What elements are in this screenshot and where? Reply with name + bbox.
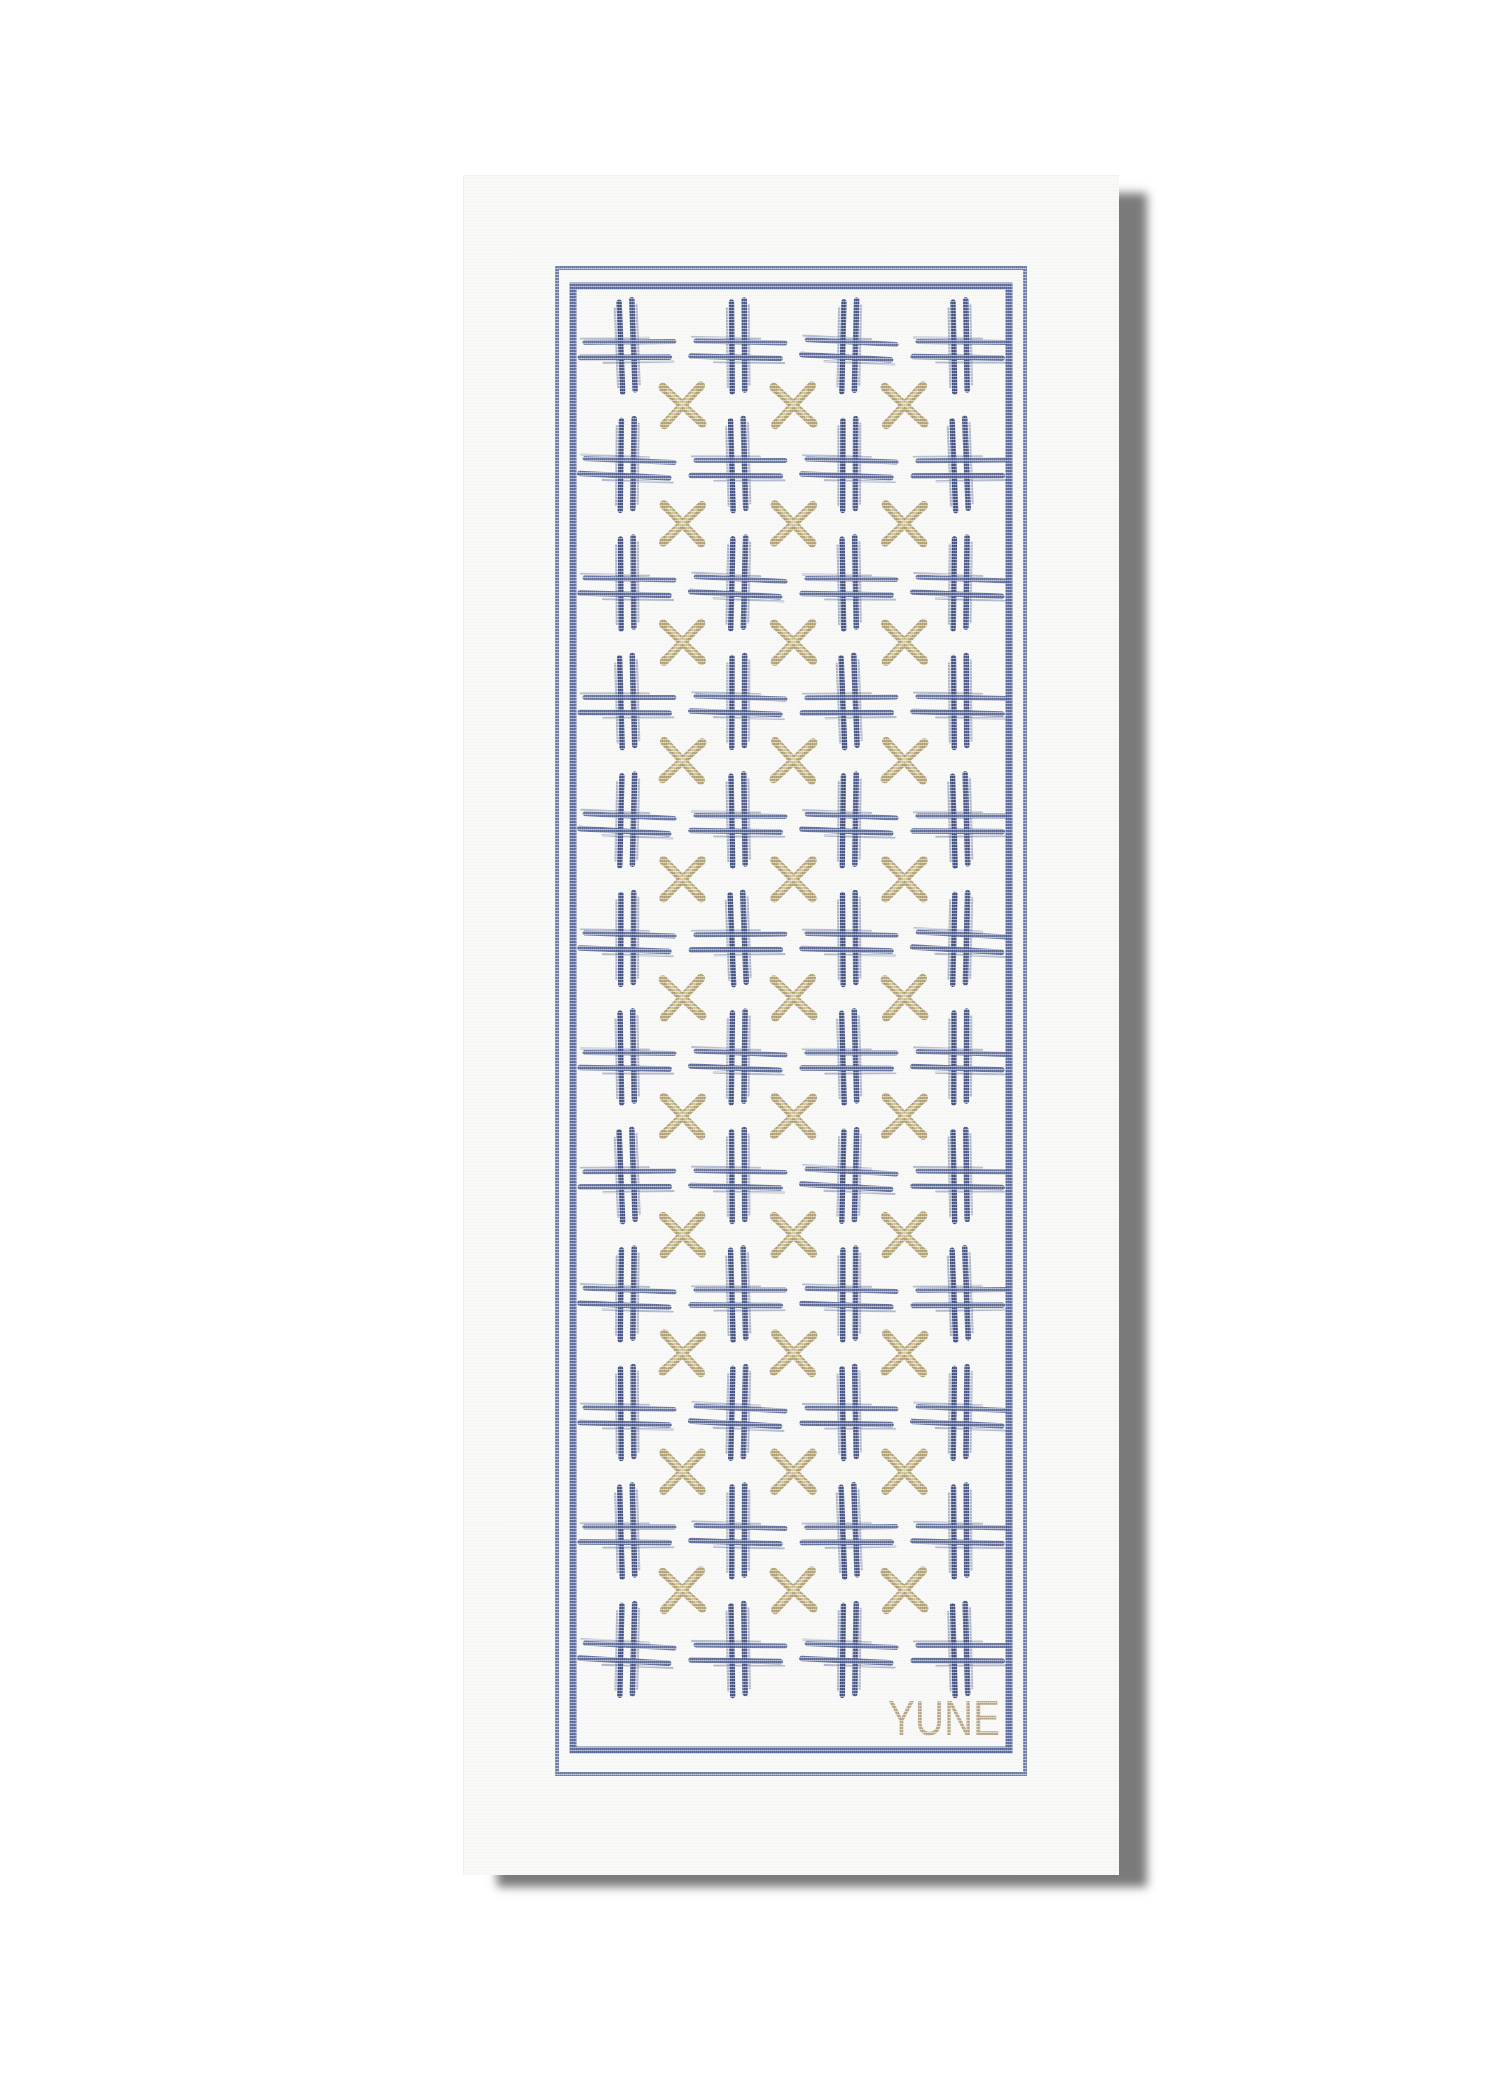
brush-stroke bbox=[727, 1493, 729, 1572]
brush-stroke bbox=[580, 1067, 669, 1070]
brush-stroke bbox=[918, 1407, 1007, 1411]
hash-symbol bbox=[579, 773, 676, 868]
brush-stroke bbox=[691, 356, 780, 359]
brush-stroke bbox=[965, 1367, 967, 1457]
hash-symbol bbox=[690, 1247, 786, 1341]
brush-stroke bbox=[616, 545, 617, 624]
brush-stroke bbox=[691, 830, 780, 833]
brush-stroke bbox=[948, 545, 950, 624]
brush-stroke bbox=[726, 1019, 728, 1098]
brush-stroke bbox=[619, 302, 623, 392]
brush-stroke bbox=[731, 1606, 733, 1696]
brush-stroke bbox=[731, 657, 733, 747]
brush-stroke bbox=[802, 1540, 891, 1545]
brush-stroke bbox=[585, 696, 674, 700]
brush-stroke bbox=[615, 1493, 617, 1572]
hash-symbol bbox=[690, 536, 787, 631]
hash-symbol bbox=[802, 1248, 897, 1341]
cross-symbol bbox=[661, 623, 704, 662]
brush-stroke bbox=[691, 1659, 780, 1662]
brush-stroke bbox=[691, 1066, 780, 1070]
brush-stroke bbox=[913, 947, 1002, 952]
brush-stroke bbox=[807, 1407, 896, 1410]
brush-stroke bbox=[936, 1547, 1006, 1548]
brush-stroke bbox=[842, 776, 845, 866]
brush-stroke bbox=[748, 542, 751, 622]
brush-stroke bbox=[803, 930, 871, 932]
brush-stroke bbox=[638, 1372, 639, 1452]
brush-stroke bbox=[744, 1485, 746, 1575]
brush-stroke bbox=[620, 420, 623, 510]
brush-stroke bbox=[748, 1016, 750, 1096]
brush-stroke bbox=[633, 893, 635, 983]
hash-symbol bbox=[690, 1010, 786, 1104]
brush-stroke bbox=[971, 661, 972, 741]
brush-stroke bbox=[936, 718, 1006, 719]
brush-stroke bbox=[918, 1288, 1007, 1293]
brush-stroke bbox=[807, 1051, 896, 1055]
cross-symbol bbox=[884, 860, 926, 898]
brush-stroke bbox=[727, 782, 729, 861]
brush-stroke bbox=[743, 1367, 746, 1457]
brush-stroke bbox=[837, 782, 839, 861]
brush-stroke bbox=[802, 1184, 891, 1189]
brush-stroke bbox=[918, 458, 1007, 463]
brush-stroke bbox=[692, 1167, 760, 1169]
brush-stroke bbox=[837, 1611, 839, 1690]
brush-stroke bbox=[970, 542, 972, 622]
brush-stroke bbox=[730, 1368, 734, 1458]
brush-stroke bbox=[855, 537, 857, 627]
hash-symbol bbox=[580, 1011, 675, 1104]
brush-stroke bbox=[748, 661, 749, 741]
hash-symbol bbox=[691, 1130, 785, 1222]
brush-stroke bbox=[603, 1429, 673, 1430]
brush-stroke bbox=[637, 1609, 640, 1689]
brush-stroke bbox=[838, 901, 839, 980]
hash-symbol bbox=[801, 654, 898, 749]
brush-stroke bbox=[965, 537, 967, 627]
cross-symbol bbox=[662, 860, 704, 898]
brush-stroke bbox=[948, 1612, 950, 1691]
brush-stroke bbox=[952, 894, 956, 984]
brush-stroke bbox=[913, 1422, 1002, 1426]
brush-stroke bbox=[970, 1016, 971, 1096]
brush-stroke bbox=[585, 814, 674, 819]
brush-stroke bbox=[802, 355, 891, 360]
brush-stroke bbox=[748, 1372, 751, 1452]
product-photo-backdrop: YUNE bbox=[0, 0, 1500, 2100]
brush-stroke bbox=[620, 1250, 623, 1340]
brush-stroke bbox=[803, 1403, 871, 1405]
hash-symbol bbox=[913, 656, 1007, 748]
hash-symbol bbox=[691, 1485, 786, 1578]
brush-stroke bbox=[619, 776, 623, 866]
brush-stroke bbox=[744, 1603, 746, 1693]
brush-stroke bbox=[838, 426, 840, 505]
hash-symbol bbox=[801, 1603, 897, 1697]
brush-stroke bbox=[918, 1644, 1007, 1648]
brush-stroke bbox=[953, 302, 955, 392]
brush-stroke bbox=[743, 1011, 745, 1101]
brush-stroke bbox=[859, 1135, 862, 1215]
brush-stroke bbox=[802, 1422, 891, 1425]
hash-symbol bbox=[579, 1247, 675, 1341]
brush-stroke bbox=[603, 599, 673, 600]
brush-stroke bbox=[918, 814, 1007, 818]
brush-stroke bbox=[731, 776, 733, 866]
brush-stroke bbox=[620, 1013, 622, 1103]
brush-stroke bbox=[714, 1192, 784, 1193]
brush-stroke bbox=[918, 1052, 1007, 1055]
brush-stroke bbox=[603, 1546, 673, 1548]
brush-stroke bbox=[859, 305, 862, 385]
brush-stroke bbox=[838, 1375, 840, 1454]
cross-symbol bbox=[883, 741, 926, 781]
brush-stroke bbox=[691, 711, 780, 714]
brush-stroke bbox=[692, 455, 760, 458]
hash-symbol bbox=[912, 417, 1009, 512]
brush-stroke bbox=[860, 898, 861, 978]
brush-stroke bbox=[970, 1134, 971, 1214]
brush-stroke bbox=[632, 774, 635, 864]
hash-symbol bbox=[579, 655, 675, 749]
brush-stroke bbox=[913, 592, 1002, 596]
brush-stroke bbox=[696, 696, 785, 699]
brush-stroke bbox=[748, 1608, 749, 1688]
cross-symbol bbox=[661, 386, 704, 426]
brush-stroke bbox=[580, 1540, 669, 1544]
brush-stroke bbox=[714, 1665, 784, 1667]
brush-stroke bbox=[842, 539, 844, 629]
brush-stroke bbox=[841, 1131, 845, 1221]
brush-stroke bbox=[632, 1248, 634, 1338]
brush-stroke bbox=[802, 1304, 891, 1307]
brush-stroke bbox=[807, 340, 896, 345]
brush-stroke bbox=[825, 1310, 895, 1312]
brush-stroke bbox=[859, 1371, 860, 1451]
brush-stroke bbox=[731, 1487, 733, 1577]
cross-symbol bbox=[884, 1453, 926, 1491]
brush-stroke bbox=[714, 717, 784, 719]
brush-stroke bbox=[730, 539, 734, 629]
brush-stroke bbox=[692, 1285, 760, 1288]
cross-symbol bbox=[661, 1571, 704, 1611]
brush-stroke bbox=[966, 656, 967, 746]
brush-stroke bbox=[580, 355, 669, 360]
brush-stroke bbox=[971, 1490, 972, 1570]
brush-stroke bbox=[585, 1052, 674, 1055]
brush-stroke bbox=[714, 480, 784, 482]
brush-stroke bbox=[632, 419, 634, 509]
cross-symbol bbox=[883, 504, 926, 543]
brush-stroke bbox=[936, 1665, 1006, 1667]
brush-stroke bbox=[714, 836, 784, 838]
brush-stroke bbox=[936, 362, 1006, 364]
brush-stroke bbox=[913, 1303, 1002, 1308]
brush-stroke bbox=[585, 1408, 674, 1410]
cross-symbol bbox=[883, 1097, 926, 1136]
hash-symbol bbox=[802, 893, 896, 985]
brush-stroke bbox=[692, 811, 760, 813]
brush-stroke bbox=[691, 947, 780, 952]
brush-stroke bbox=[802, 829, 891, 833]
brush-stroke bbox=[585, 1288, 674, 1292]
hash-symbol bbox=[580, 1367, 674, 1459]
brush-stroke bbox=[965, 774, 967, 864]
brush-stroke bbox=[965, 1603, 967, 1693]
brush-stroke bbox=[855, 1366, 857, 1456]
hash-symbol bbox=[913, 1011, 1008, 1104]
brush-stroke bbox=[633, 537, 634, 627]
brush-stroke bbox=[949, 664, 950, 743]
cross-symbol bbox=[661, 978, 704, 1018]
brush-stroke bbox=[825, 480, 895, 482]
brush-stroke bbox=[802, 474, 891, 477]
cross-symbol bbox=[772, 1571, 815, 1611]
brush-stroke bbox=[807, 1289, 896, 1292]
brush-stroke bbox=[696, 815, 785, 818]
brush-stroke bbox=[918, 341, 1007, 344]
brush-stroke bbox=[855, 419, 857, 509]
brush-stroke bbox=[732, 1132, 733, 1222]
brush-stroke bbox=[731, 1013, 734, 1103]
brush-stroke bbox=[802, 949, 891, 952]
hash-symbol bbox=[912, 1603, 1008, 1697]
brush-stroke bbox=[953, 1368, 956, 1458]
brush-stroke bbox=[807, 1644, 896, 1648]
brush-stroke bbox=[854, 1485, 857, 1575]
cross-symbol bbox=[883, 978, 926, 1018]
brush-stroke bbox=[854, 1130, 857, 1220]
cross-symbol bbox=[773, 1453, 815, 1491]
brush-stroke bbox=[748, 1253, 750, 1333]
brush-stroke bbox=[918, 1170, 1007, 1173]
brush-stroke bbox=[807, 578, 896, 581]
brush-stroke bbox=[953, 1132, 955, 1222]
brush-stroke bbox=[632, 1604, 635, 1694]
cross-symbol bbox=[661, 1215, 704, 1254]
brush-stroke bbox=[691, 1541, 780, 1544]
brush-stroke bbox=[970, 898, 973, 978]
brush-stroke bbox=[615, 1256, 617, 1335]
yoga-mat: YUNE bbox=[463, 175, 1119, 1875]
brush-stroke bbox=[637, 1490, 639, 1570]
brush-stroke bbox=[952, 421, 956, 511]
brush-stroke bbox=[620, 1487, 623, 1577]
brush-stroke bbox=[918, 697, 1007, 699]
cross-symbol bbox=[661, 504, 704, 543]
brush-stroke bbox=[749, 305, 750, 385]
brush-stroke bbox=[914, 811, 982, 814]
brush-stroke bbox=[842, 1605, 845, 1695]
brush-stroke bbox=[580, 1303, 669, 1307]
brush-stroke bbox=[691, 1186, 780, 1189]
cross-symbol bbox=[772, 623, 815, 662]
brush-stroke bbox=[855, 1248, 857, 1338]
brush-stroke bbox=[854, 1604, 856, 1694]
brush-stroke bbox=[825, 1072, 895, 1074]
brush-stroke bbox=[637, 1016, 638, 1096]
brush-stroke bbox=[603, 480, 673, 482]
hash-symbol bbox=[691, 1603, 786, 1696]
brush-stroke bbox=[936, 1191, 1006, 1193]
brush-stroke bbox=[859, 779, 861, 859]
hash-symbol bbox=[579, 299, 676, 394]
brush-stroke bbox=[692, 1640, 760, 1642]
hash-symbol bbox=[801, 1128, 898, 1223]
brush-stroke bbox=[744, 774, 746, 864]
brush-stroke bbox=[949, 1138, 951, 1217]
cross-symbol bbox=[661, 1334, 704, 1374]
brush-stroke bbox=[803, 574, 871, 576]
brush-stroke bbox=[837, 1019, 839, 1098]
brush-stroke bbox=[637, 660, 639, 740]
hash-symbol bbox=[802, 1366, 897, 1459]
hash-symbol bbox=[912, 1247, 1009, 1342]
brush-stroke bbox=[637, 1253, 639, 1333]
brush-stroke bbox=[913, 712, 1002, 715]
hash-symbol bbox=[690, 1365, 787, 1460]
brush-stroke bbox=[970, 779, 972, 859]
brush-stroke bbox=[743, 892, 746, 982]
brush-stroke bbox=[743, 537, 746, 627]
cross-symbol bbox=[772, 386, 815, 426]
brush-stroke bbox=[966, 1011, 968, 1101]
brush-stroke bbox=[727, 308, 728, 387]
brush-stroke bbox=[807, 814, 896, 818]
brush-stroke bbox=[913, 1541, 1002, 1544]
brush-stroke bbox=[914, 1640, 982, 1643]
brush-stroke bbox=[748, 423, 750, 503]
brush-stroke bbox=[966, 300, 968, 390]
brush-stroke bbox=[838, 545, 840, 624]
brush-stroke bbox=[859, 542, 860, 622]
brush-stroke bbox=[696, 1171, 785, 1173]
brush-stroke bbox=[696, 932, 785, 937]
brush-stroke bbox=[954, 1487, 955, 1577]
brush-stroke bbox=[580, 1658, 669, 1663]
brush-stroke bbox=[802, 710, 891, 715]
brush-stroke bbox=[859, 1253, 860, 1333]
brush-stroke bbox=[913, 1067, 1002, 1070]
hash-symbol bbox=[913, 1485, 1007, 1577]
brush-stroke bbox=[936, 1428, 1006, 1430]
brush-stroke bbox=[731, 1250, 734, 1340]
brush-stroke bbox=[807, 1169, 896, 1174]
brush-stroke bbox=[696, 1406, 785, 1411]
brush-stroke bbox=[913, 1185, 1002, 1188]
brush-stroke bbox=[744, 656, 746, 746]
brush-stroke bbox=[638, 542, 639, 622]
hash-symbol bbox=[801, 299, 898, 394]
hash-symbol bbox=[802, 418, 897, 511]
brush-stroke bbox=[807, 1525, 896, 1530]
hash-symbol bbox=[913, 1129, 1008, 1222]
brush-stroke bbox=[952, 1250, 956, 1340]
brush-stroke bbox=[581, 1048, 649, 1050]
brush-stroke bbox=[803, 1048, 871, 1051]
brush-stroke bbox=[854, 1011, 856, 1101]
brush-stroke bbox=[603, 1309, 673, 1311]
brush-stroke bbox=[726, 1256, 728, 1335]
brush-stroke bbox=[918, 1526, 1007, 1528]
brush-stroke bbox=[953, 539, 956, 629]
brush-stroke bbox=[842, 1250, 844, 1340]
cross-symbol bbox=[772, 978, 815, 1018]
hash-symbol bbox=[912, 1366, 1008, 1460]
hash-symbol bbox=[801, 1484, 898, 1579]
brush-stroke bbox=[744, 300, 745, 390]
brush-stroke bbox=[825, 955, 895, 956]
brush-stroke bbox=[825, 1428, 895, 1430]
brush-stroke bbox=[841, 658, 845, 748]
brush-stroke bbox=[580, 593, 669, 596]
brush-stroke bbox=[913, 473, 1002, 478]
brush-stroke bbox=[691, 1303, 780, 1307]
brush-stroke bbox=[731, 421, 734, 511]
brush-stroke bbox=[965, 418, 968, 508]
brush-stroke bbox=[621, 1369, 622, 1459]
brush-stroke bbox=[859, 424, 860, 504]
brush-stroke bbox=[581, 1404, 649, 1406]
hash-symbol bbox=[801, 773, 897, 867]
hash-symbol bbox=[912, 891, 1009, 986]
brush-stroke bbox=[585, 933, 674, 936]
brush-stroke bbox=[616, 1019, 618, 1098]
hash-symbol bbox=[802, 537, 897, 630]
cross-symbol bbox=[772, 504, 815, 543]
brush-stroke bbox=[918, 932, 1007, 937]
hash-symbol bbox=[912, 536, 1008, 630]
brush-stroke bbox=[621, 539, 622, 629]
brush-stroke bbox=[913, 829, 1002, 833]
brush-stroke bbox=[696, 459, 785, 463]
brush-stroke bbox=[913, 1659, 1002, 1663]
brush-stroke bbox=[748, 779, 749, 859]
brush-stroke bbox=[580, 948, 669, 951]
hash-symbol bbox=[580, 892, 675, 985]
brush-stroke bbox=[953, 1013, 955, 1103]
brush-stroke bbox=[615, 426, 617, 505]
brush-stroke bbox=[714, 362, 784, 363]
brush-stroke bbox=[615, 664, 617, 743]
hash-symbol bbox=[691, 300, 785, 392]
hash-symbol bbox=[690, 418, 786, 512]
cross-symbol bbox=[883, 1571, 926, 1611]
brush-stroke bbox=[748, 1490, 749, 1570]
brush-stroke bbox=[732, 302, 733, 392]
brush-stroke bbox=[949, 1019, 951, 1098]
brush-stroke bbox=[936, 835, 1006, 837]
brush-stroke bbox=[692, 337, 760, 339]
brush-stroke bbox=[633, 1367, 634, 1457]
brush-stroke bbox=[603, 1073, 673, 1075]
hash-symbol bbox=[579, 418, 675, 512]
brush-stroke bbox=[948, 1374, 950, 1453]
brush-stroke bbox=[802, 1066, 891, 1070]
brush-stroke bbox=[966, 1485, 967, 1575]
brush-stroke bbox=[696, 577, 785, 582]
brush-stroke bbox=[603, 717, 673, 719]
brush-stroke bbox=[619, 1605, 623, 1695]
brush-stroke bbox=[749, 1135, 750, 1215]
hash-symbol bbox=[690, 891, 787, 986]
brush-stroke bbox=[585, 578, 674, 580]
brush-stroke bbox=[632, 300, 635, 390]
brush-stroke bbox=[581, 1522, 649, 1525]
brush-stroke bbox=[585, 1169, 674, 1174]
